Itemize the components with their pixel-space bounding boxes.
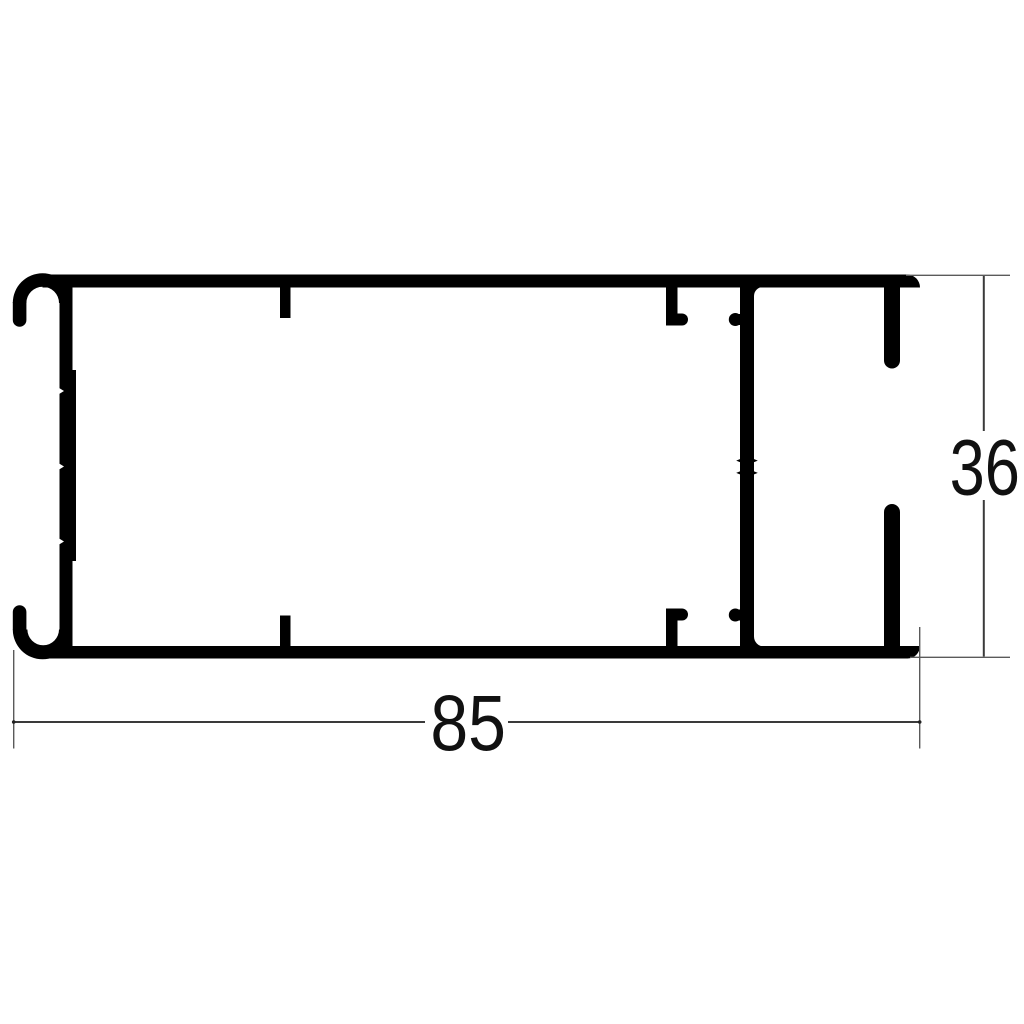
svg-text:85: 85	[430, 678, 506, 767]
svg-text:36: 36	[950, 424, 1020, 512]
